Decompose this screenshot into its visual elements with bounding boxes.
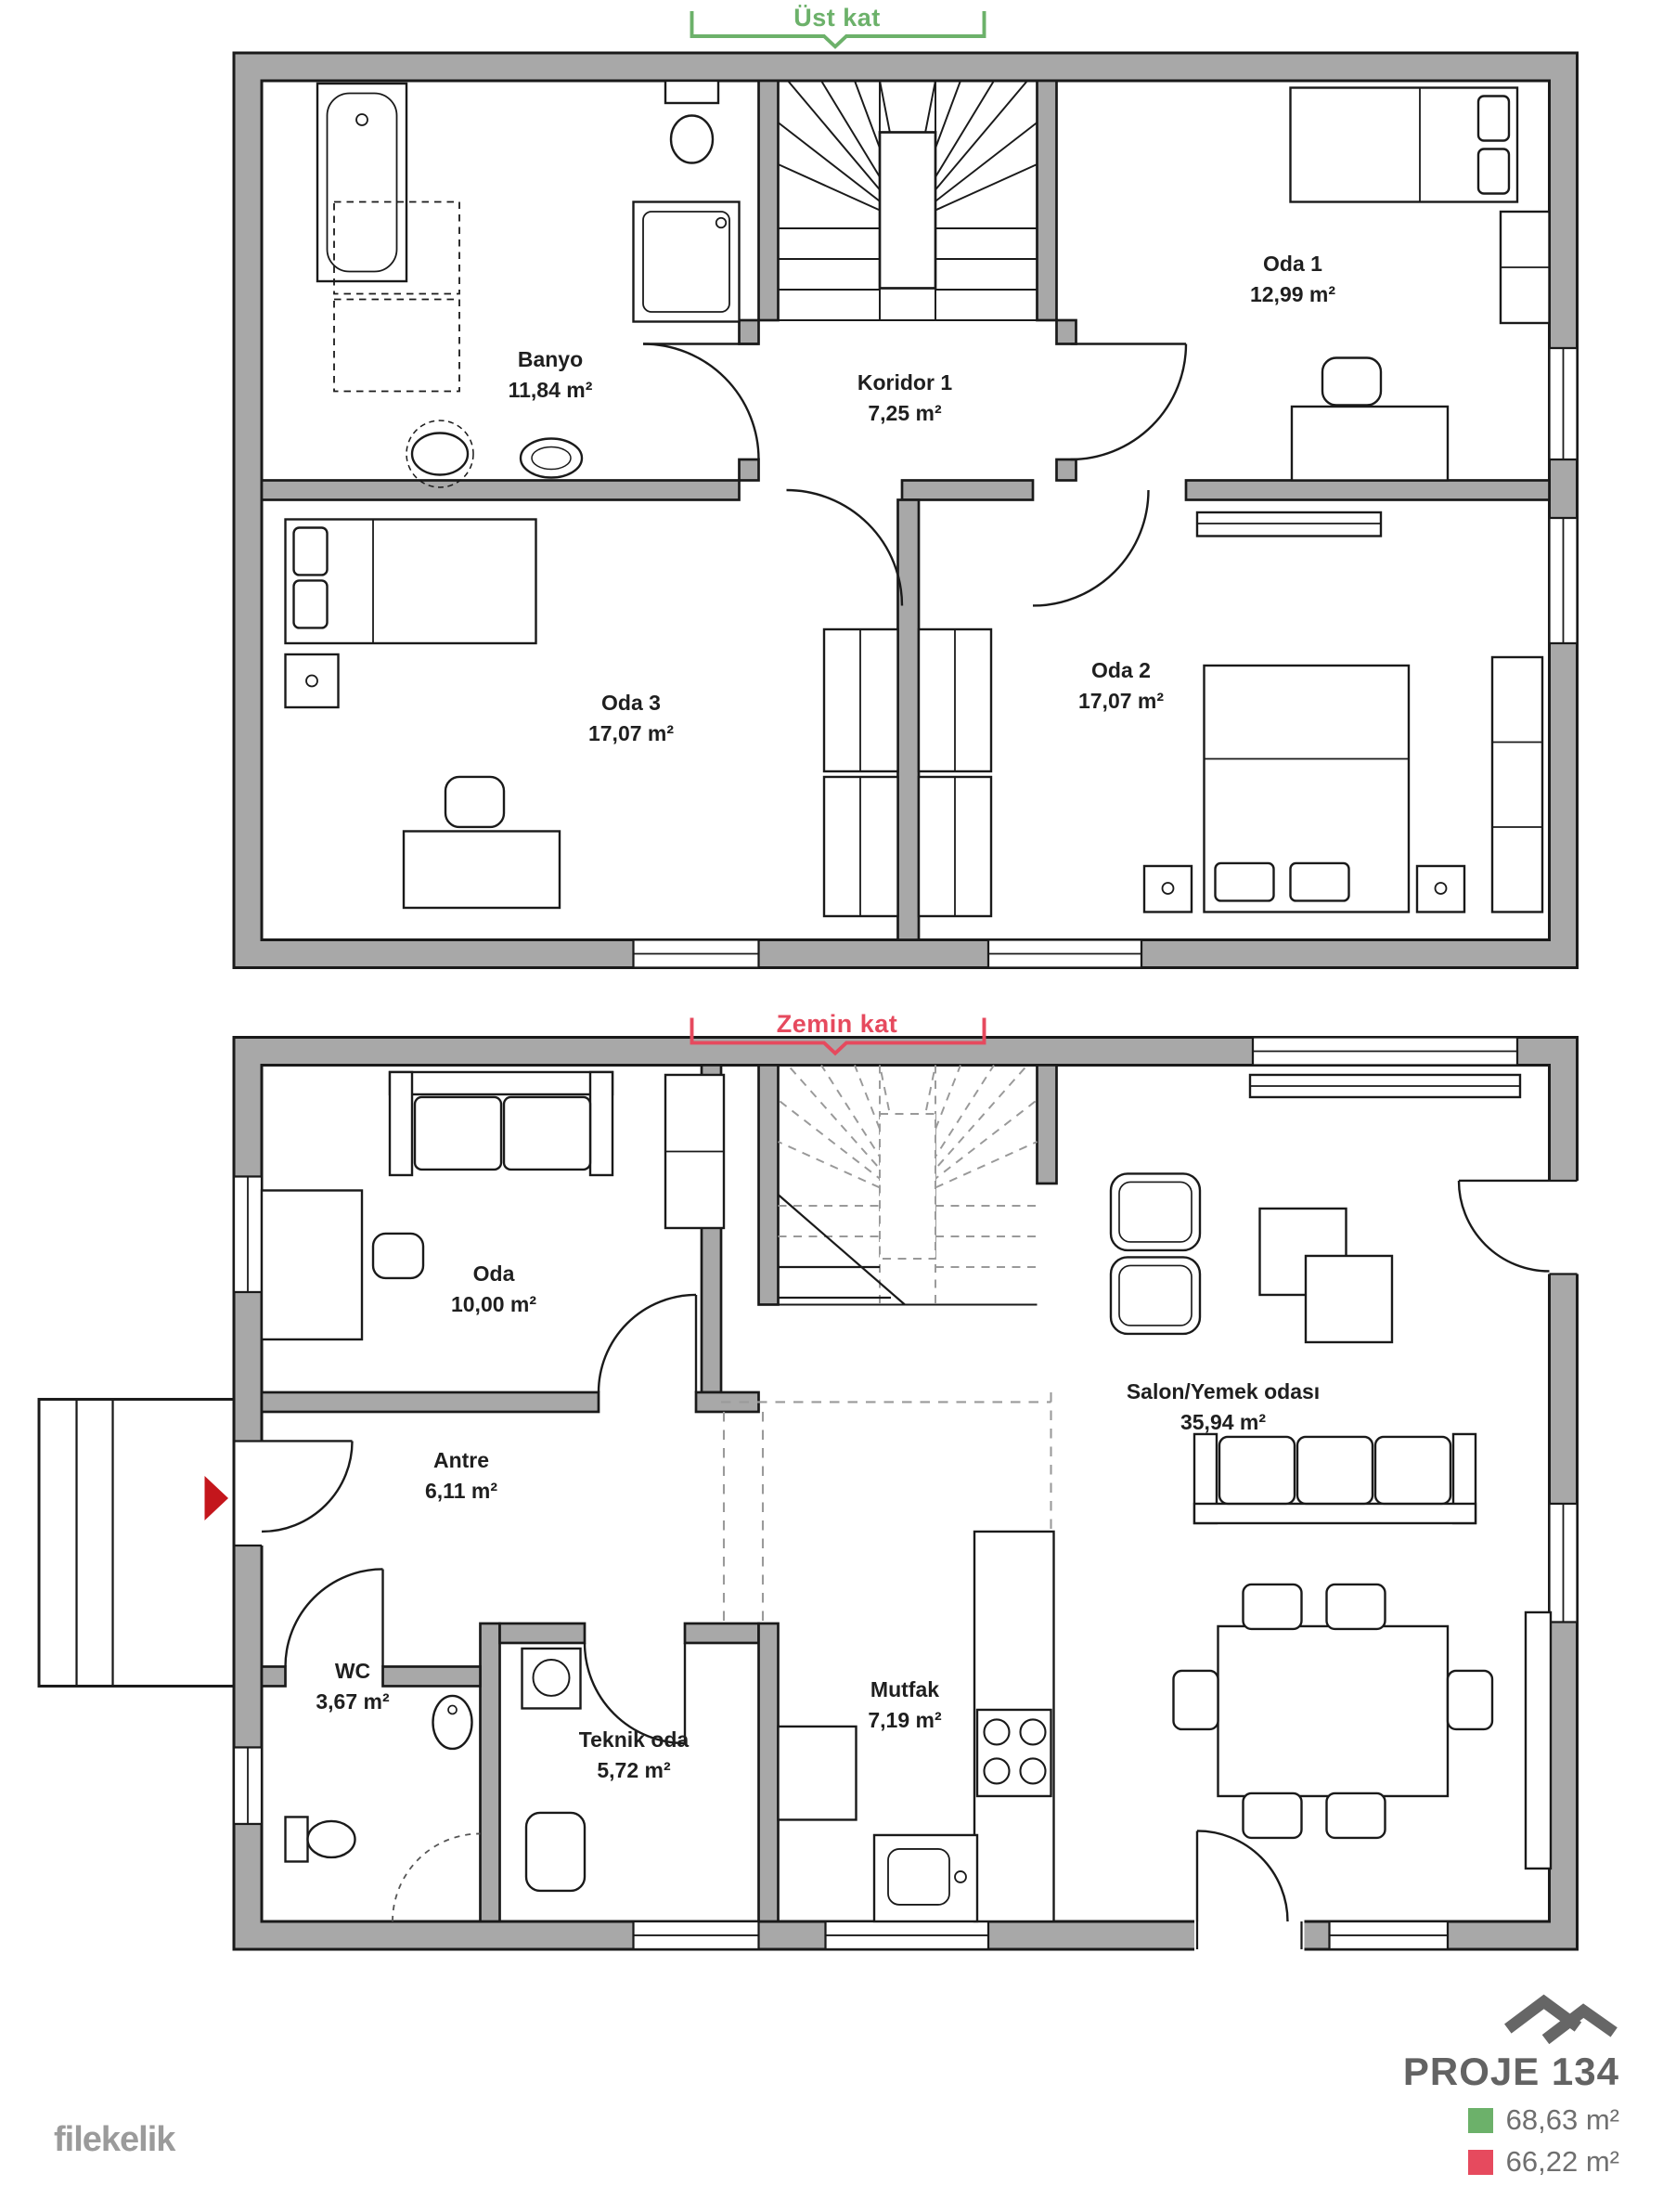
room-area: 17,07 m² (1078, 686, 1164, 717)
room-name: Salon/Yemek odası (1127, 1379, 1320, 1404)
room-label-oda: Oda 10,00 m² (451, 1259, 536, 1319)
ground-staircase (779, 1065, 1038, 1304)
room-name: Koridor 1 (857, 370, 952, 395)
room-label-mutfak: Mutfak 7,19 m² (868, 1675, 941, 1735)
area-legend: 68,63 m² 66,22 m² (1468, 2103, 1619, 2179)
room-area: 5,72 m² (579, 1755, 689, 1786)
legend-row-upper: 68,63 m² (1468, 2103, 1619, 2137)
room-name: Oda 2 (1091, 658, 1151, 682)
oda2-furniture (1144, 512, 1542, 912)
salon-furniture (1111, 1075, 1551, 1869)
room-name: Antre (433, 1448, 489, 1472)
room-area: 3,67 m² (316, 1687, 389, 1717)
room-label-oda2: Oda 2 17,07 m² (1078, 655, 1164, 716)
upper-area-swatch (1468, 2108, 1493, 2133)
room-name: Oda 3 (601, 691, 661, 715)
teknik-fixtures (522, 1649, 585, 1891)
ground-interior-walls (262, 1065, 1056, 1921)
upper-area-value: 68,63 m² (1506, 2103, 1619, 2137)
room-name: WC (335, 1659, 370, 1683)
wc-fixtures (286, 1696, 481, 1921)
room-name: Banyo (518, 347, 583, 371)
room-name: Oda 1 (1263, 252, 1322, 276)
room-name: Mutfak (870, 1677, 939, 1701)
room-label-koridor1: Koridor 1 7,25 m² (857, 368, 952, 428)
roof-logo-icon (1502, 1986, 1619, 2044)
ground-area-value: 66,22 m² (1506, 2145, 1619, 2179)
entrance-porch (39, 1399, 234, 1686)
room-area: 6,11 m² (425, 1476, 497, 1507)
room-area: 12,99 m² (1250, 279, 1335, 310)
room-name: Teknik oda (579, 1727, 689, 1752)
brand-watermark: filekelik (54, 2120, 174, 2160)
room-area: 35,94 m² (1127, 1407, 1320, 1438)
bathroom-fixtures (317, 81, 739, 487)
room-label-teknik: Teknik oda 5,72 m² (579, 1725, 689, 1785)
room-label-banyo: Banyo 11,84 m² (509, 344, 593, 405)
ground-area-swatch (1468, 2150, 1493, 2175)
room-label-salon: Salon/Yemek odası 35,94 m² (1127, 1377, 1320, 1437)
legend-row-ground: 66,22 m² (1468, 2145, 1619, 2179)
upper-floor (234, 53, 1577, 967)
floorplan-page: Üst kat Zemin kat Banyo 11,84 m² Koridor… (0, 0, 1676, 2212)
project-block: PROJE 134 68,63 m² 66,22 m² (1403, 1986, 1619, 2179)
room-label-oda1: Oda 1 12,99 m² (1250, 249, 1335, 309)
project-title: PROJE 134 (1403, 2050, 1619, 2094)
room-area: 7,19 m² (868, 1705, 941, 1736)
ground-floor (39, 1037, 1579, 1951)
room-label-oda3: Oda 3 17,07 m² (588, 688, 674, 748)
ground-floor-label: Zemin kat (777, 1010, 898, 1039)
upper-staircase (779, 81, 1038, 320)
room-area: 17,07 m² (588, 718, 674, 749)
room-label-antre: Antre 6,11 m² (425, 1445, 497, 1506)
floorplan-drawing (0, 0, 1676, 2212)
room-area: 11,84 m² (509, 375, 593, 406)
room-area: 7,25 m² (857, 398, 952, 429)
room-label-wc: WC 3,67 m² (316, 1656, 389, 1716)
room-area: 10,00 m² (451, 1289, 536, 1320)
oda3-furniture (286, 519, 560, 907)
room-name: Oda (473, 1261, 515, 1286)
upper-floor-label: Üst kat (793, 4, 881, 32)
